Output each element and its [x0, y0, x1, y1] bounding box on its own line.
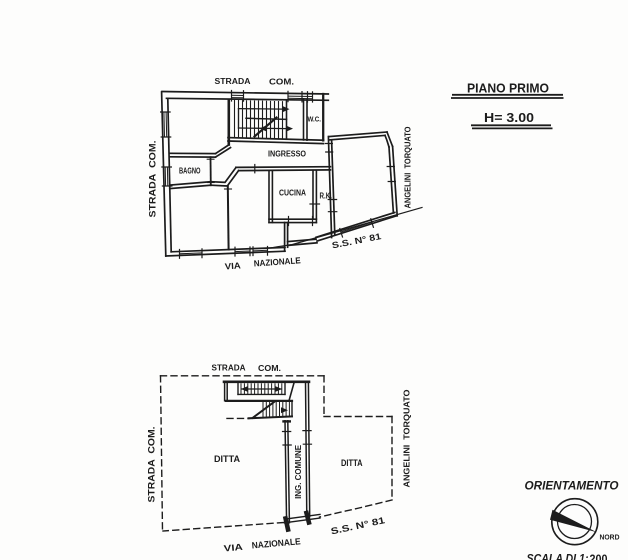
svg-text:R.K.: R.K. [320, 192, 333, 201]
svg-text:W.C.: W.C. [308, 115, 322, 124]
svg-text:STRADA COM.: STRADA COM. [147, 427, 157, 503]
svg-text:ANGELINI TORQUATO: ANGELINI TORQUATO [403, 126, 413, 208]
svg-text:CUCINA: CUCINA [279, 188, 306, 198]
svg-text:BAGNO: BAGNO [179, 167, 201, 176]
svg-text:NORD: NORD [600, 533, 621, 542]
svg-text:DITTA: DITTA [341, 458, 363, 468]
svg-text:STRADA: STRADA [212, 363, 246, 373]
svg-text:INGRESSO: INGRESSO [268, 150, 306, 159]
svg-text:SCALA DI 1:: SCALA DI 1: [527, 554, 589, 560]
svg-text:VIA: VIA [224, 260, 241, 271]
svg-text:COM.: COM. [269, 78, 294, 87]
svg-text:ING. COMUNE: ING. COMUNE [294, 444, 303, 499]
svg-text:STRADA: STRADA [215, 77, 251, 86]
svg-text:COM.: COM. [258, 363, 281, 373]
svg-text:H= 3.00: H= 3.00 [484, 110, 534, 125]
svg-text:DITTA: DITTA [214, 454, 241, 464]
svg-text:ANGELINI TORQUATO: ANGELINI TORQUATO [402, 389, 412, 488]
svg-text:PIANO PRIMO: PIANO PRIMO [467, 81, 549, 96]
svg-text:200: 200 [590, 552, 608, 560]
svg-text:STRADA COM.: STRADA COM. [147, 141, 157, 218]
svg-text:ORIENTAMENTO: ORIENTAMENTO [525, 481, 619, 493]
svg-text:VIA: VIA [223, 542, 243, 554]
